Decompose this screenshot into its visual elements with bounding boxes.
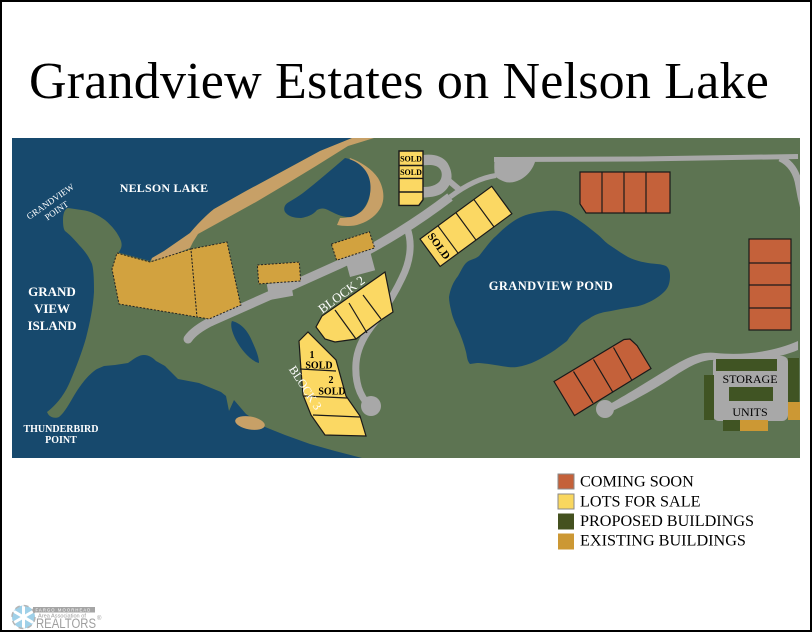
svg-text:GRANDVIEW POND: GRANDVIEW POND xyxy=(489,279,613,293)
svg-text:EXISTING BUILDINGS: EXISTING BUILDINGS xyxy=(580,532,746,550)
svg-text:®: ® xyxy=(97,615,102,622)
svg-text:REALTORS: REALTORS xyxy=(36,616,96,631)
svg-text:SOLD: SOLD xyxy=(400,155,422,164)
svg-text:UNITS: UNITS xyxy=(732,405,767,419)
svg-text:LOTS FOR SALE: LOTS FOR SALE xyxy=(580,493,701,511)
svg-text:FARGO MOORHEAD: FARGO MOORHEAD xyxy=(36,607,92,612)
svg-text:1: 1 xyxy=(310,350,315,361)
svg-text:COMING SOON: COMING SOON xyxy=(580,473,694,491)
svg-text:SOLD: SOLD xyxy=(318,387,345,398)
svg-text:PROPOSED BUILDINGS: PROPOSED BUILDINGS xyxy=(580,512,754,530)
svg-text:STORAGE: STORAGE xyxy=(722,372,777,386)
svg-text:SOLD: SOLD xyxy=(400,168,422,177)
svg-text:2: 2 xyxy=(329,375,334,386)
svg-text:GRANDVIEWISLAND: GRANDVIEWISLAND xyxy=(27,284,76,333)
svg-text:NELSON LAKE: NELSON LAKE xyxy=(120,181,209,195)
svg-text:SOLD: SOLD xyxy=(305,361,332,372)
